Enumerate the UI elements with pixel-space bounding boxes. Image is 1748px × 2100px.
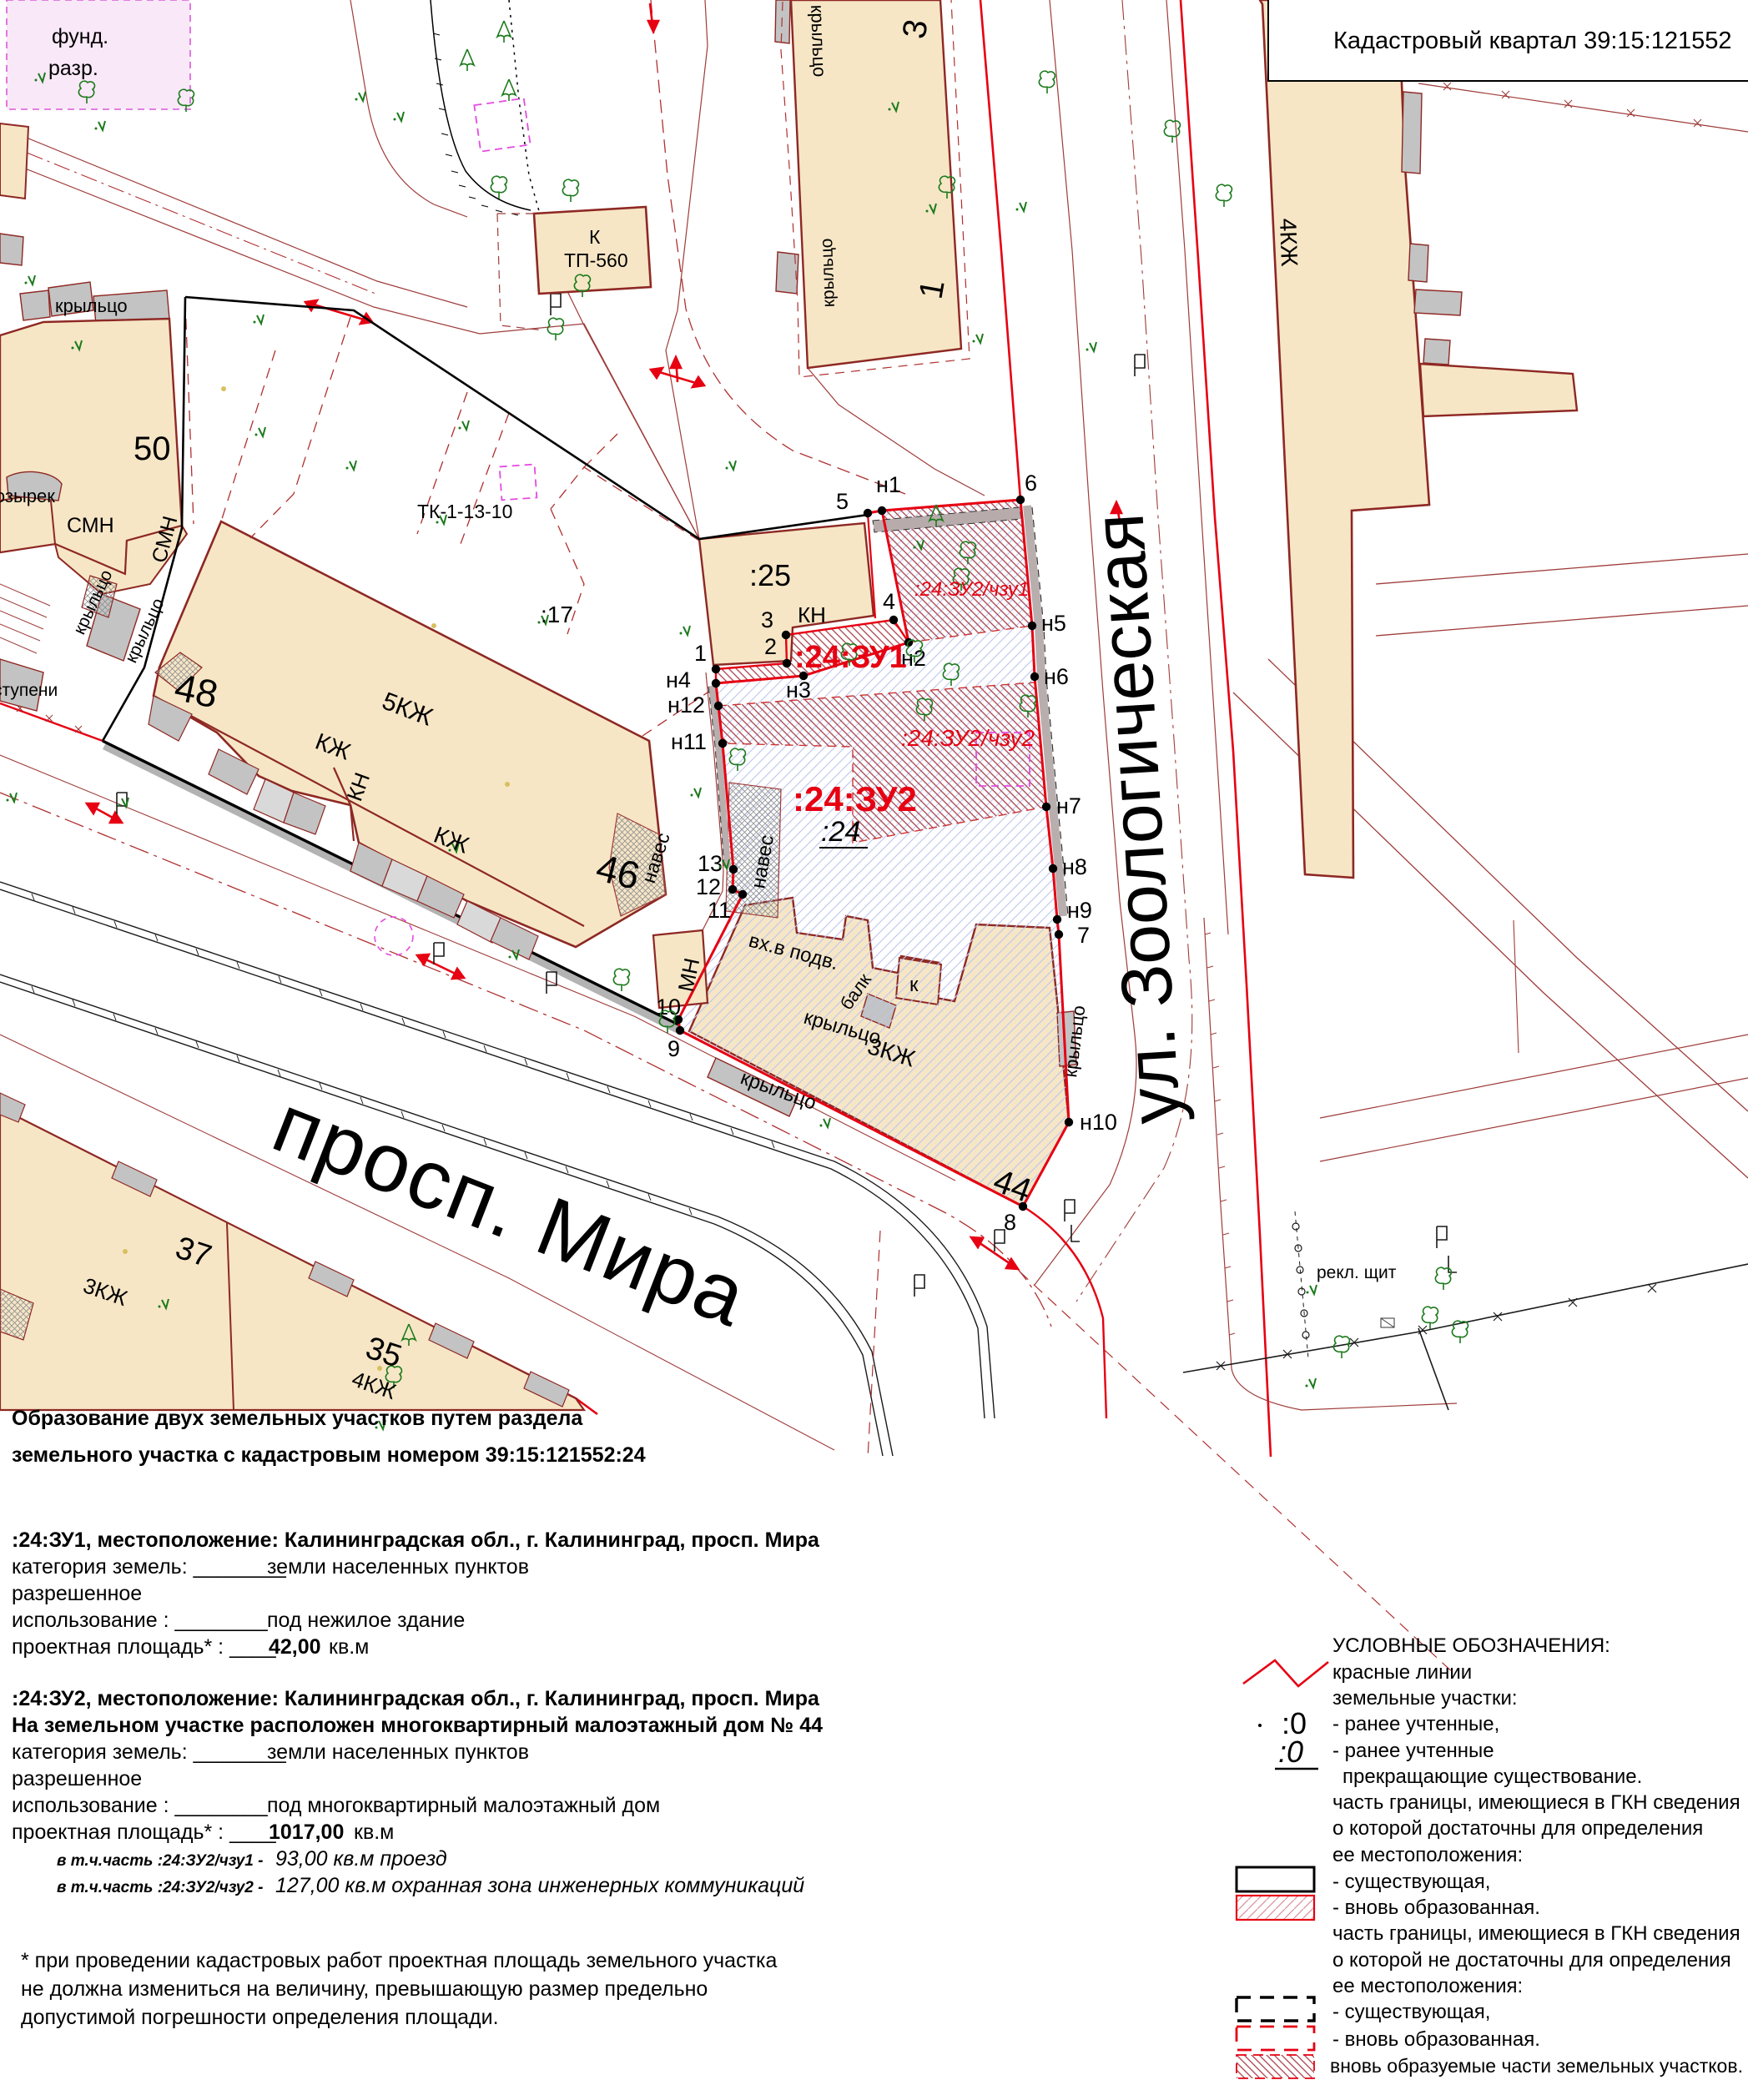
svg-text:2: 2 — [764, 634, 777, 659]
svg-text:красные линии: красные линии — [1332, 1661, 1472, 1684]
svg-text:к: к — [909, 974, 919, 996]
svg-text:4: 4 — [883, 589, 895, 614]
svg-text::24:ЗУ1: :24:ЗУ1 — [794, 640, 907, 675]
svg-text::24:ЗУ2/чзу2: :24:ЗУ2/чзу2 — [901, 725, 1035, 751]
svg-text:50: 50 — [133, 431, 171, 467]
svg-text:категория земель: ________: категория земель: ________ — [12, 1555, 287, 1579]
svg-text:- ранее учтенные: - ранее учтенные — [1332, 1740, 1494, 1762]
svg-text:н8: н8 — [1062, 854, 1087, 879]
svg-text:земельные участки:: земельные участки: — [1332, 1687, 1518, 1710]
svg-text:н11: н11 — [671, 729, 707, 754]
svg-text:разр.: разр. — [48, 57, 98, 80]
svg-text:ТП-560: ТП-560 — [564, 249, 628, 271]
svg-text:н9: н9 — [1067, 898, 1092, 923]
svg-text:8: 8 — [1004, 1210, 1016, 1235]
svg-text::24:ЗУ2/чзу1: :24:ЗУ2/чзу1 — [914, 578, 1029, 601]
svg-text:5: 5 — [836, 489, 849, 514]
svg-text:проектная площадь* : ____: проектная площадь* : ____ — [12, 1635, 277, 1659]
svg-text::24:ЗУ2: :24:ЗУ2 — [793, 779, 917, 818]
svg-text:6: 6 — [1025, 471, 1037, 496]
svg-text:под нежилое здание: под нежилое здание — [267, 1609, 465, 1632]
svg-text::25: :25 — [749, 558, 791, 592]
svg-text:ТК-1-13-10: ТК-1-13-10 — [417, 501, 512, 522]
svg-text:прекращающие существование.: прекращающие существование. — [1342, 1765, 1642, 1788]
svg-text:под многоквартирный малоэтажны: под многоквартирный малоэтажный дом — [267, 1794, 660, 1817]
svg-text:н6: н6 — [1044, 664, 1069, 689]
svg-text:3: 3 — [761, 607, 773, 632]
svg-text:проектная площадь* : ____: проектная площадь* : ____ — [12, 1821, 277, 1844]
svg-text:Кадастровый квартал 39:15:12: Кадастровый квартал 39:15:121552 — [1333, 28, 1731, 54]
svg-text:часть границы, имеющиеся в ГКН: часть границы, имеющиеся в ГКН сведения — [1332, 1922, 1740, 1945]
svg-text:н1: н1 — [876, 472, 901, 497]
svg-text::24: :24 — [821, 816, 860, 848]
svg-text:11: 11 — [708, 898, 731, 923]
svg-text:- существующая,: - существующая, — [1332, 2001, 1490, 2023]
svg-text:козырек: козырек — [0, 486, 55, 506]
svg-text:разрешенное: разрешенное — [12, 1767, 142, 1790]
svg-text:о которой не достаточны для оп: о которой не достаточны для определения — [1332, 1949, 1731, 1972]
svg-text:- ранее учтенные,: - ранее учтенные, — [1332, 1713, 1499, 1735]
svg-text:в т.ч.часть :24:ЗУ2/чзу1 -: в т.ч.часть :24:ЗУ2/чзу1 - — [57, 1852, 263, 1870]
svg-text:в т.ч.часть :24:ЗУ2/чзу2 -: в т.ч.часть :24:ЗУ2/чзу2 - — [57, 1879, 263, 1896]
svg-text:н4: н4 — [666, 667, 691, 692]
svg-text:категория земель: ________: категория земель: ________ — [12, 1740, 287, 1764]
svg-text:* при проведении кадастровых р: * при проведении кадастровых работ проек… — [21, 1949, 778, 1972]
svg-text:земли населенных пунктов: земли населенных пунктов — [267, 1740, 529, 1764]
svg-text:не должна измениться на величи: не должна измениться на величину, превыш… — [21, 1977, 708, 2001]
svg-text:127,00 кв.м охранная зона инже: 127,00 кв.м охранная зона инженерных ком… — [275, 1874, 804, 1897]
svg-text:На земельном участке расположе: На земельном участке расположен многоква… — [12, 1714, 823, 1737]
svg-text:42,00: 42,00 — [269, 1635, 321, 1659]
svg-text:- вновь образованная.: - вновь образованная. — [1332, 1896, 1540, 1919]
svg-text:рекл. щит: рекл. щит — [1317, 1263, 1397, 1282]
svg-text:крыльцо: крыльцо — [807, 4, 830, 77]
svg-text::0: :0 — [1278, 1735, 1303, 1769]
svg-text:- вновь образованная.: - вновь образованная. — [1332, 2028, 1540, 2051]
svg-text:- существующая,: - существующая, — [1332, 1871, 1490, 1893]
svg-text:земли населенных пунктов: земли населенных пунктов — [267, 1555, 529, 1579]
svg-text:1017,00: 1017,00 — [269, 1821, 344, 1844]
svg-text:часть границы, имеющиеся в ГКН: часть границы, имеющиеся в ГКН сведения — [1332, 1791, 1740, 1814]
svg-text:1: 1 — [694, 641, 707, 666]
svg-text:н12: н12 — [667, 692, 705, 718]
svg-text:крыльцо: крыльцо — [817, 238, 839, 307]
svg-text:13: 13 — [698, 851, 723, 876]
svg-text:крыльцо: крыльцо — [55, 295, 128, 316]
svg-text::24:ЗУ1, местоположение: Калин: :24:ЗУ1, местоположение: Калининградская… — [12, 1528, 820, 1552]
svg-text:использование : ________: использование : ________ — [12, 1609, 269, 1632]
svg-text:о которой достаточны для опред: о которой достаточны для определения — [1332, 1817, 1703, 1840]
svg-text:12: 12 — [696, 874, 721, 899]
svg-text:н3: н3 — [786, 677, 811, 703]
svg-text:К: К — [589, 226, 601, 248]
svg-text:вновь образуемые части земельн: вновь образуемые части земельных участко… — [1330, 2055, 1743, 2077]
svg-text:н5: н5 — [1041, 611, 1066, 636]
svg-text:4КЖ: 4КЖ — [1275, 218, 1302, 267]
svg-text:48: 48 — [171, 665, 222, 717]
svg-text:фунд.: фунд. — [52, 25, 108, 48]
svg-text:УСЛОВНЫЕ ОБОЗНАЧЕНИЯ:: УСЛОВНЫЕ ОБОЗНАЧЕНИЯ: — [1332, 1634, 1610, 1657]
svg-text:кв.м: кв.м — [329, 1635, 369, 1659]
svg-text:использование : ________: использование : ________ — [12, 1794, 269, 1817]
svg-text::17: :17 — [541, 602, 573, 627]
svg-text:земельного участка с кадастров: земельного участка с кадастровым номером… — [12, 1443, 646, 1467]
svg-text:кв.м: кв.м — [354, 1821, 394, 1844]
svg-text:9: 9 — [667, 1036, 680, 1061]
svg-text:93,00 кв.м проезд: 93,00 кв.м проезд — [275, 1847, 447, 1871]
svg-text:10: 10 — [656, 995, 681, 1020]
svg-text:СМН: СМН — [67, 514, 114, 537]
svg-text:допустимой погрешности определ: допустимой погрешности определения площа… — [21, 2006, 499, 2029]
svg-text:7: 7 — [1077, 923, 1090, 948]
svg-text:разрешенное: разрешенное — [12, 1582, 142, 1605]
svg-text:Образование двух земельных уча: Образование двух земельных участков путе… — [12, 1407, 583, 1430]
svg-text:н7: н7 — [1056, 793, 1081, 818]
svg-text::24:ЗУ2, местоположение: Калин: :24:ЗУ2, местоположение: Калининградская… — [12, 1687, 820, 1710]
svg-text:ступени: ступени — [0, 681, 58, 700]
svg-text:ее местоположения:: ее местоположения: — [1332, 1844, 1523, 1866]
svg-text:ее местоположения:: ее местоположения: — [1332, 1975, 1523, 1997]
svg-text:КН: КН — [798, 602, 826, 627]
svg-text:н10: н10 — [1080, 1110, 1117, 1135]
